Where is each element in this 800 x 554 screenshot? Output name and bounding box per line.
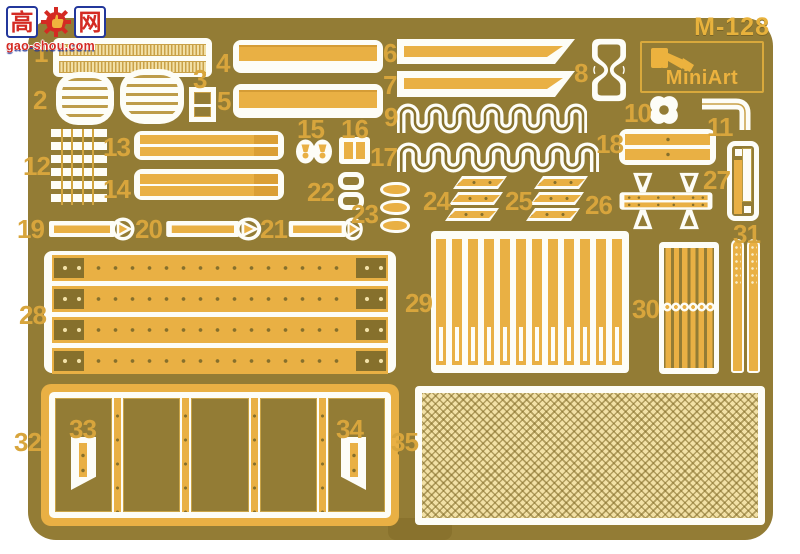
rail-dots [734,244,741,286]
part-5-bar [233,84,383,118]
part-20-strap [164,217,264,241]
slant-strip-band [452,195,500,202]
strip-band [140,147,278,156]
band-end-tab [54,320,84,340]
pe-fret-sheet: 1 2 3 4 5 6 7 8 9 10 11 12 13 14 15 16 1… [0,0,800,554]
part-label-34: 34 [336,416,363,442]
plate-divider [194,104,211,107]
rail [731,239,744,373]
part-label-20: 20 [135,216,162,242]
part-label-31: 31 [733,221,760,247]
ring [338,172,364,190]
rivet-dots [90,358,350,364]
bracket-square [742,204,753,215]
bar-band [239,45,377,61]
mullion [319,398,326,512]
strip-end [254,135,278,144]
part-label-16: 16 [341,116,368,142]
part-35-mesh-screen [415,386,765,525]
rail [747,239,760,373]
frame-inner [49,392,391,518]
part-29-slat-block [431,231,629,373]
part-label-32: 32 [14,429,41,455]
part-2-grille [120,69,184,124]
latch-strip [350,443,358,477]
part-label-12: 12 [23,153,50,179]
window [191,398,248,512]
blade-band [404,46,563,57]
rivet-dots [90,265,350,271]
part-label-17: 17 [370,144,397,170]
part-9-serpentine [397,100,587,136]
part-label-5: 5 [217,88,230,114]
part-label-21: 21 [260,216,287,242]
part-28-fender-panel [44,251,396,373]
part-label-23: 23 [351,201,378,227]
part-26-bowtie-bracket [617,171,715,231]
brand-logo-box: MiniArt [640,41,764,93]
part-label-18: 18 [596,131,623,157]
slant-strip [534,176,588,189]
part-19-strap [47,217,137,241]
slant-strip [530,192,584,205]
bullet [380,182,410,197]
buckle-slot [344,142,353,159]
part-label-27: 27 [703,167,730,193]
mullion [182,398,189,512]
buckle-slot [356,142,365,159]
fender-band [52,286,388,312]
slant-strip-band [533,195,581,202]
part-label-9: 9 [384,104,397,130]
latch-strip [79,443,87,477]
strip-band [140,135,278,144]
slant-strip-band [537,179,585,186]
slant-strip-band [529,211,577,218]
strip-end [254,186,278,196]
part-2-grille [56,72,114,125]
part-25-slant-strips [526,176,588,224]
part-4-bar [233,40,383,73]
part-label-11: 11 [707,114,733,140]
bracket-strip [742,148,752,202]
band-end-tab [54,289,84,309]
slant-strip-band [448,211,496,218]
part-10-quatrefoil [648,95,680,125]
strip-band [140,186,278,196]
gear-thumbs-up-icon [40,6,72,38]
part-27-tall-bracket [727,141,759,221]
sheet-code: M-128 [660,13,770,42]
part-label-30: 30 [632,296,659,322]
watermark-char-right: 网 [74,6,106,38]
band-end-tab [54,351,84,371]
band-end-tab [356,320,386,340]
band-end-tab [356,351,386,371]
fender-band [52,317,388,343]
rivet-dots [90,327,350,333]
part-label-35: 35 [391,429,418,455]
part-30-buckle-straps [659,242,719,374]
band-end-tab [54,258,84,278]
watermark-url: gao-shou.com [6,39,106,53]
part-label-22: 22 [307,179,334,205]
bullet [380,200,410,215]
part-24-slant-strips [445,176,507,224]
part-label-24: 24 [423,188,450,214]
blade-band [404,78,563,89]
part-14-strips [134,169,284,200]
bracket-strip [734,160,742,214]
part-31-twin-rails [731,239,760,373]
part-7-blade-strip [397,71,575,97]
part-label-4: 4 [216,50,229,76]
strip-band [140,174,278,184]
slant-strip [526,208,580,221]
strip-end [254,147,278,156]
part-17-serpentine [397,139,599,175]
strip-end [254,174,278,184]
part-label-6: 6 [383,40,396,66]
part-18-twin-bar [619,129,716,165]
rivet-dots [90,296,350,302]
part-label-2: 2 [33,87,46,113]
part-label-26: 26 [585,192,612,218]
bullet [380,218,410,233]
mullion [114,398,121,512]
part-6-blade-strip [397,39,575,64]
part-label-28: 28 [19,302,46,328]
fender-band [52,348,388,374]
part-label-7: 7 [383,72,396,98]
part-label-33: 33 [69,416,96,442]
part-23-bullets [380,182,412,236]
bar-band [625,134,710,145]
slant-strip-band [456,179,504,186]
slant-strip [445,208,499,221]
part-label-13: 13 [103,134,130,160]
grille-slats [62,78,108,119]
window [260,398,317,512]
slant-strip [449,192,503,205]
band-end-tab [356,258,386,278]
window [123,398,180,512]
ladder-rail [61,129,73,205]
watermark-logo-row: 高 网 [6,6,106,38]
part-label-8: 8 [574,60,587,86]
part-12-ladder [51,129,107,205]
part-label-19: 19 [17,216,44,242]
part-label-14: 14 [103,176,130,202]
band-end-tab [356,289,386,309]
bar-band [239,90,377,108]
part-label-25: 25 [505,188,532,214]
ladder-rail [82,129,94,205]
part-label-10: 10 [624,100,651,126]
mesh-weave [422,393,758,518]
slat-slots [436,327,624,361]
bar-band [625,149,710,160]
watermark-char-left: 高 [6,6,38,38]
slant-strip [453,176,507,189]
fender-band [52,255,388,281]
part-8-hourglass [588,37,630,103]
part-label-3: 3 [193,66,206,92]
part-13-strips [134,131,284,160]
strap-buckles [663,300,715,314]
mullion [251,398,258,512]
site-watermark: 高 网 gao-shou.com [6,6,106,53]
grille-slats [126,75,178,118]
brand-name: MiniArt [642,67,762,90]
part-label-29: 29 [405,290,432,316]
rail-dots [750,244,757,286]
part-label-15: 15 [297,116,324,142]
